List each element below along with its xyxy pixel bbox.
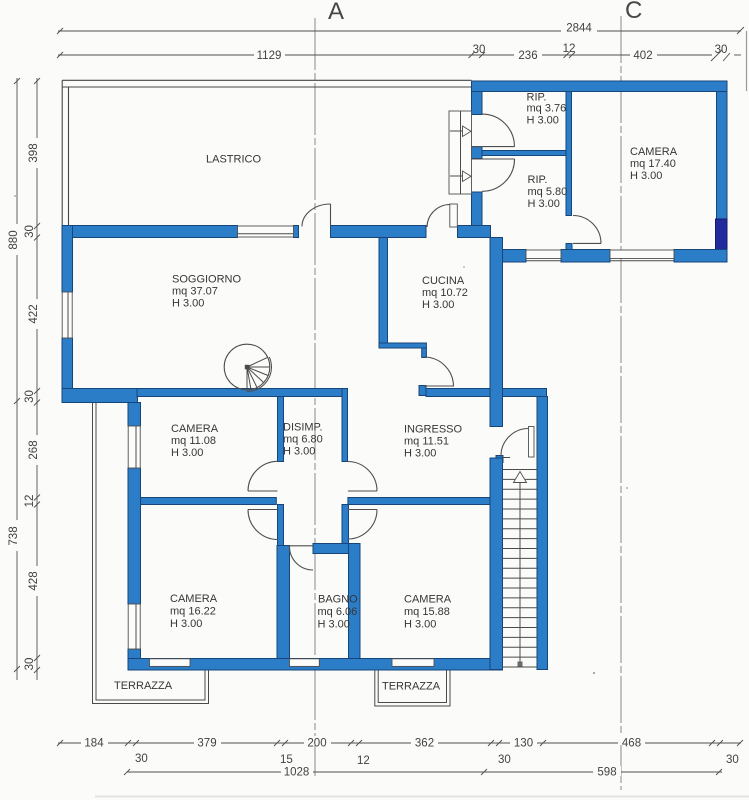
svg-text:C: C bbox=[625, 0, 642, 24]
svg-text:INGRESSO: INGRESSO bbox=[404, 424, 463, 436]
svg-text:mq 6.06: mq 6.06 bbox=[318, 606, 358, 618]
svg-text:mq 10.72: mq 10.72 bbox=[422, 287, 468, 299]
svg-text:CAMERA: CAMERA bbox=[171, 423, 219, 435]
svg-text:H 3.00: H 3.00 bbox=[171, 447, 203, 459]
svg-text:184: 184 bbox=[84, 738, 104, 750]
svg-text:1129: 1129 bbox=[257, 50, 282, 62]
svg-text:422: 422 bbox=[28, 304, 40, 323]
svg-text:H 3.00: H 3.00 bbox=[172, 298, 204, 310]
svg-text:A: A bbox=[328, 0, 344, 25]
svg-text:DISIMP.: DISIMP. bbox=[283, 422, 323, 434]
svg-text:mq 37.07: mq 37.07 bbox=[172, 286, 218, 298]
svg-text:LASTRICO: LASTRICO bbox=[206, 154, 261, 166]
svg-text:880: 880 bbox=[8, 230, 20, 249]
svg-text:mq 17.40: mq 17.40 bbox=[630, 158, 676, 170]
svg-text:12: 12 bbox=[357, 755, 370, 767]
svg-text:402: 402 bbox=[633, 50, 652, 62]
svg-text:mq 6.80: mq 6.80 bbox=[283, 434, 323, 446]
svg-text:TERRAZZA: TERRAZZA bbox=[114, 680, 173, 692]
svg-text:738: 738 bbox=[8, 526, 20, 545]
svg-text:H 3.00: H 3.00 bbox=[630, 170, 662, 182]
svg-text:1028: 1028 bbox=[284, 767, 310, 779]
svg-text:mq 16.22: mq 16.22 bbox=[170, 606, 216, 618]
svg-text:379: 379 bbox=[197, 738, 216, 750]
svg-text:H 3.00: H 3.00 bbox=[404, 619, 436, 631]
svg-text:30: 30 bbox=[726, 754, 739, 766]
svg-text:CAMERA: CAMERA bbox=[404, 594, 452, 606]
svg-text:30: 30 bbox=[715, 44, 728, 56]
svg-text:362: 362 bbox=[415, 738, 434, 750]
svg-text:CUCINA: CUCINA bbox=[422, 275, 465, 287]
svg-text:268: 268 bbox=[28, 440, 40, 459]
svg-text:RIP.: RIP. bbox=[527, 92, 547, 104]
svg-text:mq 5.80: mq 5.80 bbox=[528, 186, 568, 198]
svg-text:30: 30 bbox=[135, 753, 148, 765]
svg-text:mq 15.88: mq 15.88 bbox=[404, 606, 450, 618]
svg-text:CAMERA: CAMERA bbox=[630, 146, 678, 158]
svg-text:mq 11.51: mq 11.51 bbox=[404, 436, 449, 448]
svg-text:mq 3.76: mq 3.76 bbox=[527, 103, 567, 115]
svg-text:468: 468 bbox=[622, 738, 641, 750]
svg-text:236: 236 bbox=[518, 50, 537, 62]
svg-text:CAMERA: CAMERA bbox=[170, 593, 218, 605]
svg-text:200: 200 bbox=[307, 738, 326, 750]
svg-text:30: 30 bbox=[24, 658, 36, 671]
svg-text:RIP.: RIP. bbox=[528, 174, 548, 186]
svg-text:H 3.00: H 3.00 bbox=[527, 115, 559, 127]
svg-text:30: 30 bbox=[24, 225, 36, 238]
svg-text:30: 30 bbox=[498, 754, 511, 766]
svg-text:H 3.00: H 3.00 bbox=[318, 619, 350, 631]
svg-text:mq 11.08: mq 11.08 bbox=[171, 435, 216, 447]
svg-text:12: 12 bbox=[24, 495, 36, 508]
svg-text:BAGNO: BAGNO bbox=[318, 594, 358, 606]
svg-text:30: 30 bbox=[473, 44, 486, 56]
svg-text:12: 12 bbox=[563, 43, 576, 55]
svg-text:2844: 2844 bbox=[566, 23, 592, 35]
svg-text:130: 130 bbox=[514, 738, 533, 750]
svg-text:398: 398 bbox=[28, 143, 40, 162]
svg-text:598: 598 bbox=[597, 767, 616, 779]
svg-text:H 3.00: H 3.00 bbox=[170, 618, 202, 630]
svg-text:SOGGIORNO: SOGGIORNO bbox=[172, 274, 242, 286]
svg-text:TERRAZZA: TERRAZZA bbox=[382, 681, 441, 693]
svg-text:428: 428 bbox=[28, 571, 40, 590]
svg-text:H 3.00: H 3.00 bbox=[404, 448, 436, 460]
svg-text:30: 30 bbox=[24, 390, 36, 403]
svg-text:H 3.00: H 3.00 bbox=[528, 198, 560, 210]
svg-text:15: 15 bbox=[280, 754, 293, 766]
svg-text:H 3.00: H 3.00 bbox=[283, 446, 315, 458]
svg-text:H 3.00: H 3.00 bbox=[422, 299, 454, 311]
